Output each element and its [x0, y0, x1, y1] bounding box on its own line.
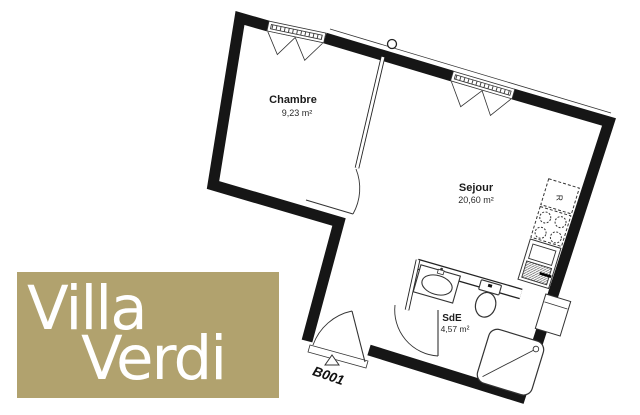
- room-label-sejour: Sejour: [459, 182, 494, 194]
- fridge-label: R: [555, 195, 565, 201]
- facade-post-marker: [388, 40, 397, 49]
- logo-word-verdi: Verdi: [81, 328, 225, 389]
- door-leaf: [352, 311, 365, 362]
- villa-verdi-logo: Villa Verdi: [17, 272, 279, 398]
- bathroom-door: [395, 305, 438, 356]
- cooktop: [531, 207, 571, 247]
- window-sejour: [444, 71, 514, 120]
- partition-chambre-sejour: [357, 57, 383, 168]
- room-label-chambre: Chambre: [269, 94, 317, 106]
- room-area-sejour: 20,60 m²: [458, 195, 494, 205]
- door-swing-arc: [395, 305, 438, 356]
- room-area-sde: 4,57 m²: [441, 324, 470, 334]
- chambre-door: [306, 169, 360, 214]
- floor-plan-page: R Chambre 9,23 m² Sejour 20,60 m² SdE 4,…: [0, 0, 640, 415]
- room-area-chambre: 9,23 m²: [282, 108, 313, 118]
- door-swing-arc: [353, 169, 360, 214]
- utility-unit: [535, 294, 570, 336]
- unit-number-label: B001: [311, 363, 346, 388]
- room-label-sde: SdE: [442, 313, 462, 324]
- window-chambre: [263, 21, 326, 63]
